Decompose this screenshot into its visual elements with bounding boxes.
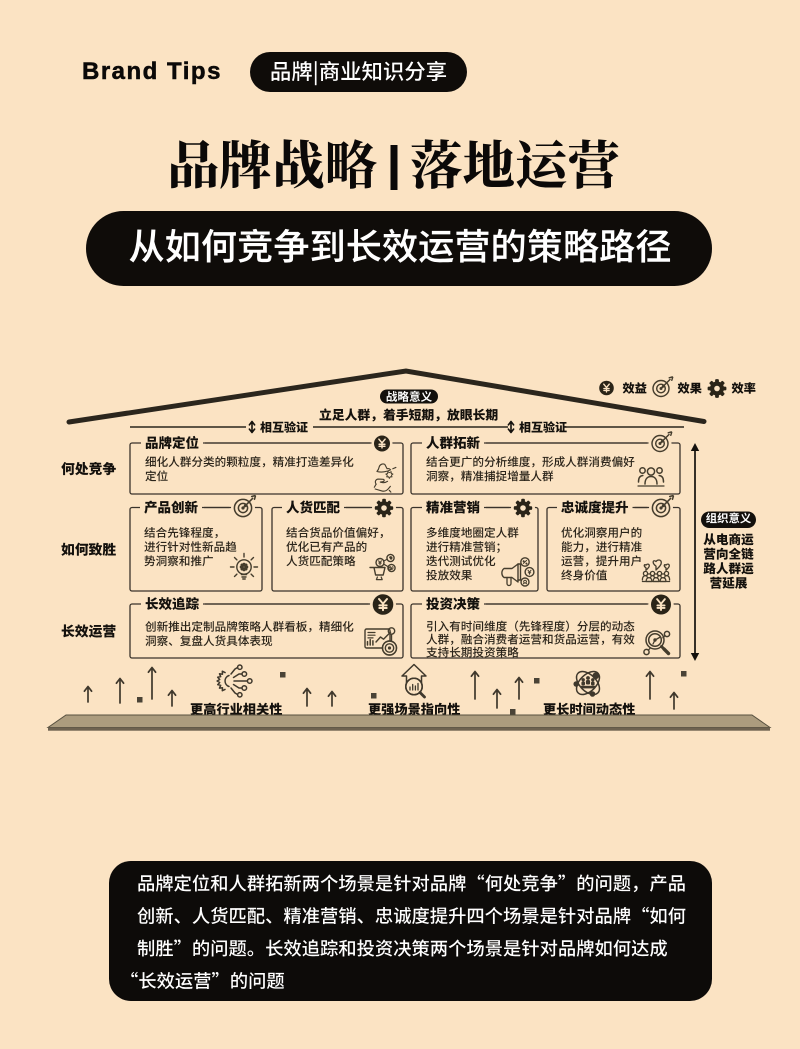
svg-text:Brand Tips: Brand Tips [82, 58, 222, 85]
